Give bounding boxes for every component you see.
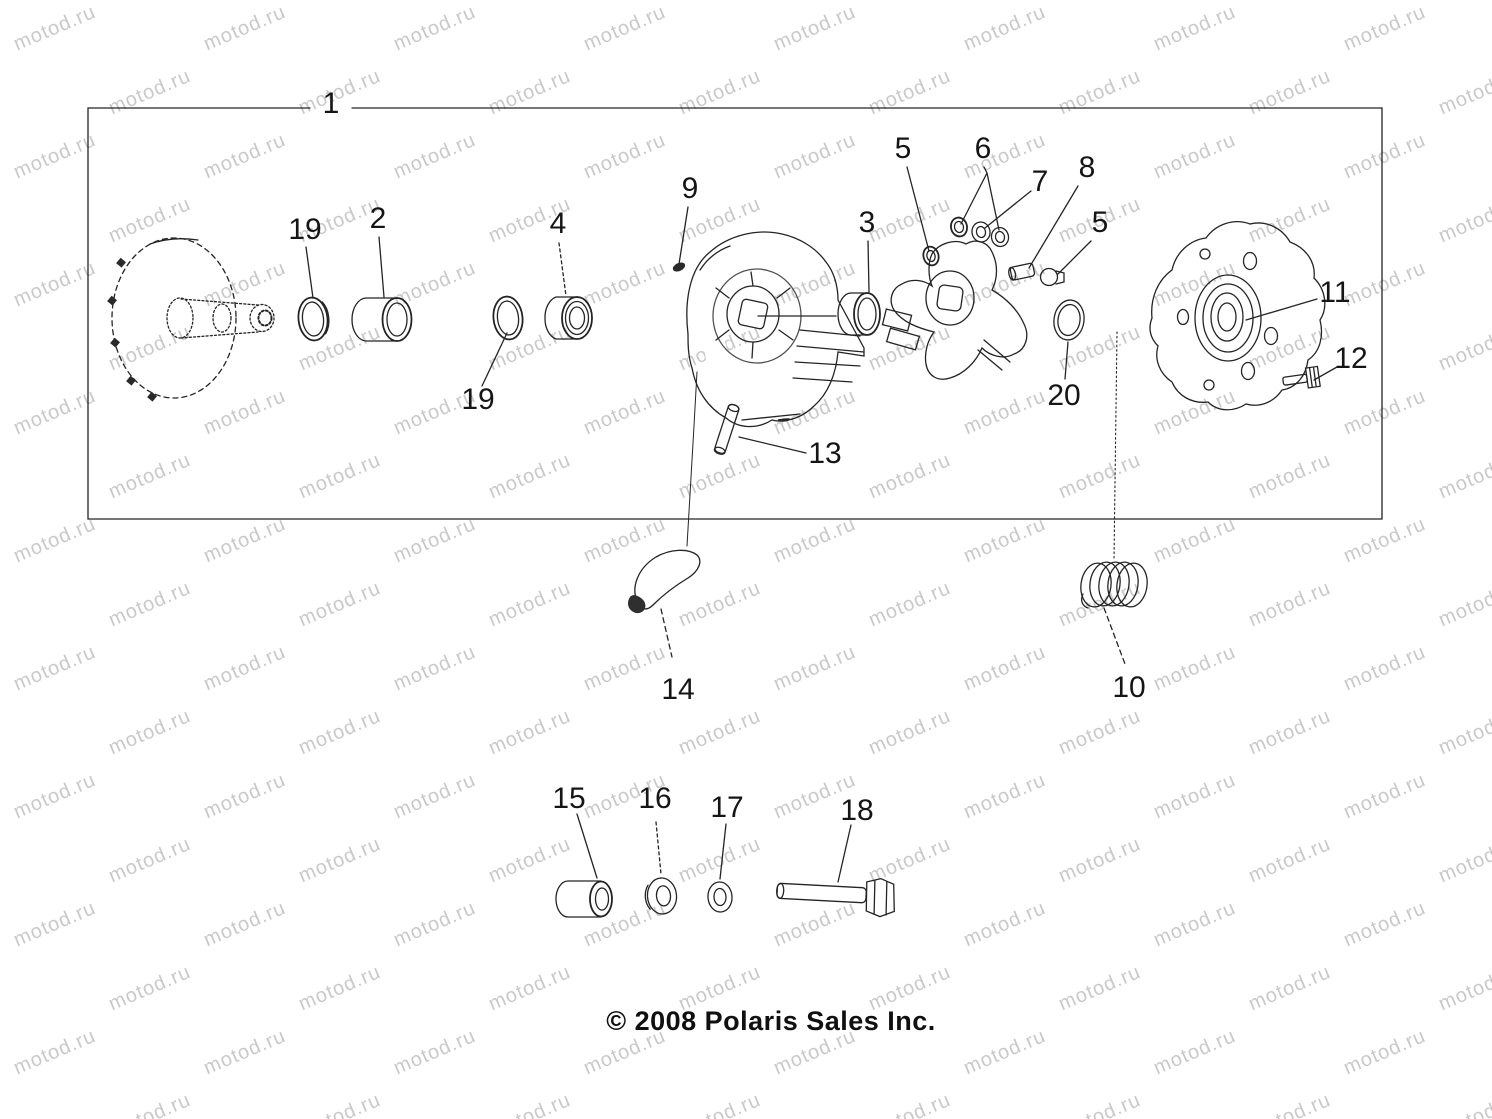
callout-1: 1 — [323, 87, 340, 120]
part-cover-bushing — [838, 293, 880, 335]
part-o-ring-front — [296, 296, 331, 342]
callout-3: 3 — [859, 206, 876, 239]
leader-3-vert — [868, 241, 869, 292]
part-roll-pin — [714, 403, 740, 455]
part-flanged-bushing — [545, 297, 592, 339]
part-spacer-ring — [1051, 298, 1086, 342]
leader-15 — [577, 814, 597, 878]
part-washer-7 — [970, 220, 992, 243]
leader-11 — [1246, 299, 1317, 320]
part-spider-assembly — [882, 241, 1026, 379]
callout-6: 6 — [975, 132, 992, 165]
callout-2: 2 — [370, 202, 387, 235]
callout-5a: 5 — [895, 132, 912, 165]
parts-diagram: 1 19 2 4 19 9 3 5 6 7 8 5 20 11 12 13 14… — [0, 0, 1492, 1119]
part-weight-bolt — [776, 873, 896, 917]
leader-20 — [1065, 342, 1068, 379]
part-washer-6a — [949, 216, 969, 238]
parts-catalog-page: motod.rumotod.rumotod.rumotod.rumotod.ru… — [0, 0, 1492, 1119]
part-thin-washer — [707, 881, 733, 913]
callout-10: 10 — [1112, 671, 1145, 704]
leader-2 — [379, 237, 384, 297]
callout-19a: 19 — [288, 213, 321, 246]
leader-5-left — [907, 167, 929, 251]
callout-4: 4 — [550, 207, 567, 240]
leader-17 — [720, 824, 726, 879]
part-spacer-bushing — [556, 881, 612, 917]
copyright-text: © 2008 Polaris Sales Inc. — [606, 1006, 936, 1037]
callout-8: 8 — [1079, 151, 1096, 184]
leader-10-dashed — [1104, 608, 1125, 664]
callout-13: 13 — [808, 437, 841, 470]
callout-18: 18 — [840, 794, 873, 827]
callout-9: 9 — [682, 172, 699, 205]
callout-16: 16 — [638, 782, 671, 815]
leader-16 — [656, 822, 661, 874]
leader-19-front — [306, 247, 313, 298]
sheave-shaft — [167, 298, 274, 338]
callout-20: 20 — [1047, 379, 1080, 412]
leader-9 — [679, 207, 688, 264]
callout-5b: 5 — [1092, 206, 1109, 239]
part-o-ring-rear — [491, 295, 524, 341]
leader-19-rear — [482, 333, 507, 386]
leader-18 — [838, 825, 851, 882]
callout-17: 17 — [710, 791, 743, 824]
leader-14-long — [687, 372, 697, 546]
callout-19b: 19 — [461, 383, 494, 416]
part-fixed-sheave — [107, 238, 274, 402]
part-thick-washer — [644, 877, 678, 916]
leader-13 — [739, 437, 806, 453]
callout-7: 7 — [1032, 165, 1049, 198]
part-clutch-weight — [628, 550, 700, 613]
callout-15: 15 — [552, 782, 585, 815]
leader-lines — [306, 167, 1337, 882]
part-cover-plate — [1150, 222, 1325, 410]
leader-4 — [559, 243, 566, 296]
callout-12: 12 — [1334, 342, 1367, 375]
leader-10-dotted — [1114, 332, 1117, 559]
callout-labels: 1 19 2 4 19 9 3 5 6 7 8 5 20 11 12 13 14… — [288, 87, 1367, 827]
callout-14: 14 — [661, 673, 694, 706]
part-clutch-spring — [1078, 560, 1150, 609]
part-washer-6b — [990, 226, 1011, 248]
part-clutch-cover — [687, 232, 864, 427]
leader-14-dashed — [661, 609, 672, 657]
leader-5-right — [1058, 241, 1091, 274]
callout-11: 11 — [1319, 276, 1350, 309]
part-sleeve-bushing — [352, 298, 412, 341]
leader-8 — [1029, 186, 1078, 268]
